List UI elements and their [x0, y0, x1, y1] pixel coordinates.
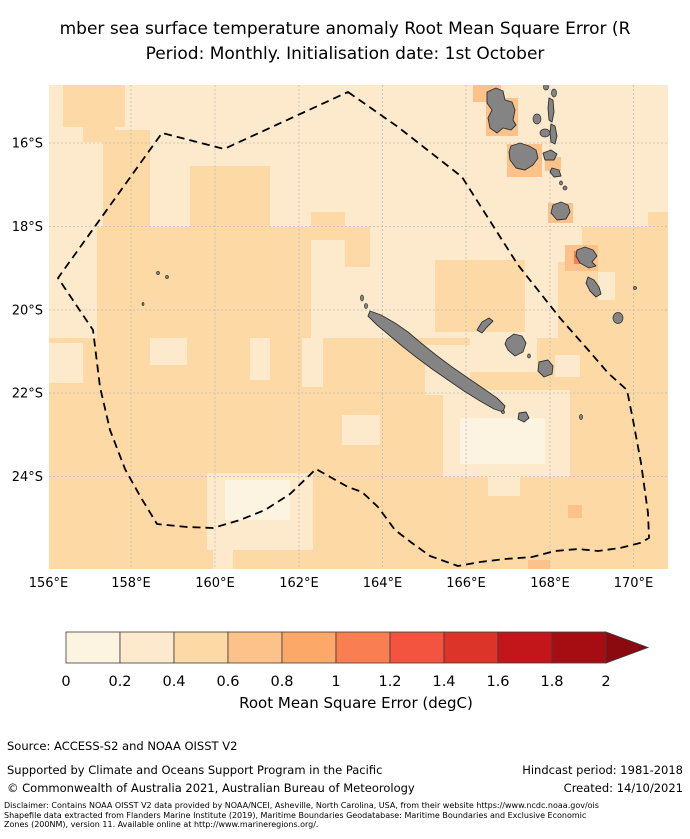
map-figure-canvas: 156°E158°E160°E162°E164°E166°E168°E170°E…	[0, 0, 690, 730]
island-shape	[560, 181, 563, 185]
y-tick-label: 18°S	[12, 220, 43, 235]
island-shape	[613, 313, 623, 324]
colorbar-tick-label: 0.6	[216, 674, 239, 690]
island-shape	[634, 287, 637, 290]
colorbar: 00.20.40.60.811.21.41.61.82	[61, 632, 648, 690]
x-tick-label: 164°E	[363, 576, 403, 591]
colorbar-segment	[120, 632, 174, 663]
colorbar-tick-label: 1.4	[432, 674, 455, 690]
island-shape	[533, 114, 541, 124]
figure-page: { "title": { "line1": "mber sea surface …	[0, 0, 690, 839]
island-shape	[544, 84, 549, 90]
field-patch	[460, 418, 545, 464]
colorbar-segment	[498, 632, 552, 663]
x-tick-label: 170°E	[614, 576, 654, 591]
field-patch	[488, 467, 520, 496]
island-shape	[580, 415, 583, 420]
field-patch	[598, 272, 615, 300]
field-patch	[470, 332, 537, 372]
y-tick-label: 22°S	[12, 387, 43, 402]
colorbar-tick-label: 0.2	[108, 674, 131, 690]
island-shape	[157, 272, 160, 275]
field-patch	[190, 166, 270, 227]
field-patch	[97, 227, 311, 345]
island-shape	[502, 411, 505, 414]
x-tick-label: 160°E	[195, 576, 235, 591]
colorbar-label: Root Mean Square Error (degC)	[239, 694, 473, 712]
colorbar-segment	[444, 632, 498, 663]
colorbar-tick-label: 1.2	[378, 674, 401, 690]
field-patch	[342, 415, 380, 445]
island-shape	[166, 276, 169, 279]
colorbar-tick-label: 0.8	[270, 674, 293, 690]
island-shape	[365, 304, 368, 309]
colorbar-tick-label: 0	[61, 674, 70, 690]
x-tick-label: 166°E	[446, 576, 486, 591]
island-shape	[563, 186, 567, 190]
island-shape	[361, 295, 364, 301]
copyright-line: © Commonwealth of Australia 2021, Austra…	[7, 781, 415, 795]
colorbar-tick-label: 1.8	[540, 674, 563, 690]
hindcast-period: Hindcast period: 1981-2018	[522, 763, 683, 777]
x-tick-label: 162°E	[279, 576, 319, 591]
colorbar-segment	[390, 632, 444, 663]
island-shape	[528, 354, 531, 358]
colorbar-extend-arrow	[606, 632, 648, 663]
island-shape	[540, 129, 550, 137]
x-axis-tick-labels: 156°E158°E160°E162°E164°E166°E168°E170°E	[29, 576, 654, 591]
colorbar-tick-label: 1.6	[486, 674, 509, 690]
field-patch	[528, 560, 550, 569]
field-patch	[103, 130, 150, 230]
field-patch	[213, 550, 233, 569]
field-patch	[568, 505, 582, 518]
colorbar-segment	[174, 632, 228, 663]
colorbar-segment	[336, 632, 390, 663]
colorbar-tick-label: 0.4	[162, 674, 185, 690]
rmse-field-layer	[49, 85, 668, 569]
x-tick-label: 156°E	[29, 576, 69, 591]
island-shape	[142, 303, 144, 306]
field-patch	[302, 338, 323, 387]
colorbar-segment	[282, 632, 336, 663]
field-patch	[435, 260, 525, 332]
colorbar-segment	[66, 632, 120, 663]
colorbar-tick-label: 1	[331, 674, 340, 690]
colorbar-segment	[228, 632, 282, 663]
y-tick-label: 16°S	[12, 137, 43, 152]
x-tick-label: 158°E	[111, 576, 151, 591]
field-patch	[250, 338, 270, 380]
colorbar-tick-label: 2	[601, 674, 610, 690]
island-shape	[552, 89, 557, 97]
field-patch	[311, 212, 345, 240]
field-patch	[555, 355, 580, 377]
disclaimer-line-2: Shapefile data extracted from Flanders M…	[4, 811, 690, 820]
y-tick-label: 20°S	[12, 304, 43, 319]
x-tick-label: 168°E	[530, 576, 570, 591]
disclaimer-line-3: Zones (200NM), version 11. Available onl…	[4, 820, 690, 829]
island-shape	[548, 98, 554, 122]
field-patch	[49, 343, 83, 383]
disclaimer-line-1: Disclaimer: Contains NOAA OISST V2 data …	[4, 801, 690, 810]
colorbar-segment	[552, 632, 606, 663]
created-date: Created: 14/10/2021	[564, 781, 683, 795]
supported-line: Supported by Climate and Oceans Support …	[7, 763, 382, 777]
field-patch	[150, 338, 187, 365]
field-patch	[345, 227, 370, 267]
y-axis-tick-labels: 16°S18°S20°S22°S24°S	[12, 137, 43, 486]
y-tick-label: 24°S	[12, 470, 43, 485]
source-line: Source: ACCESS-S2 and NOAA OISST V2	[7, 739, 237, 753]
